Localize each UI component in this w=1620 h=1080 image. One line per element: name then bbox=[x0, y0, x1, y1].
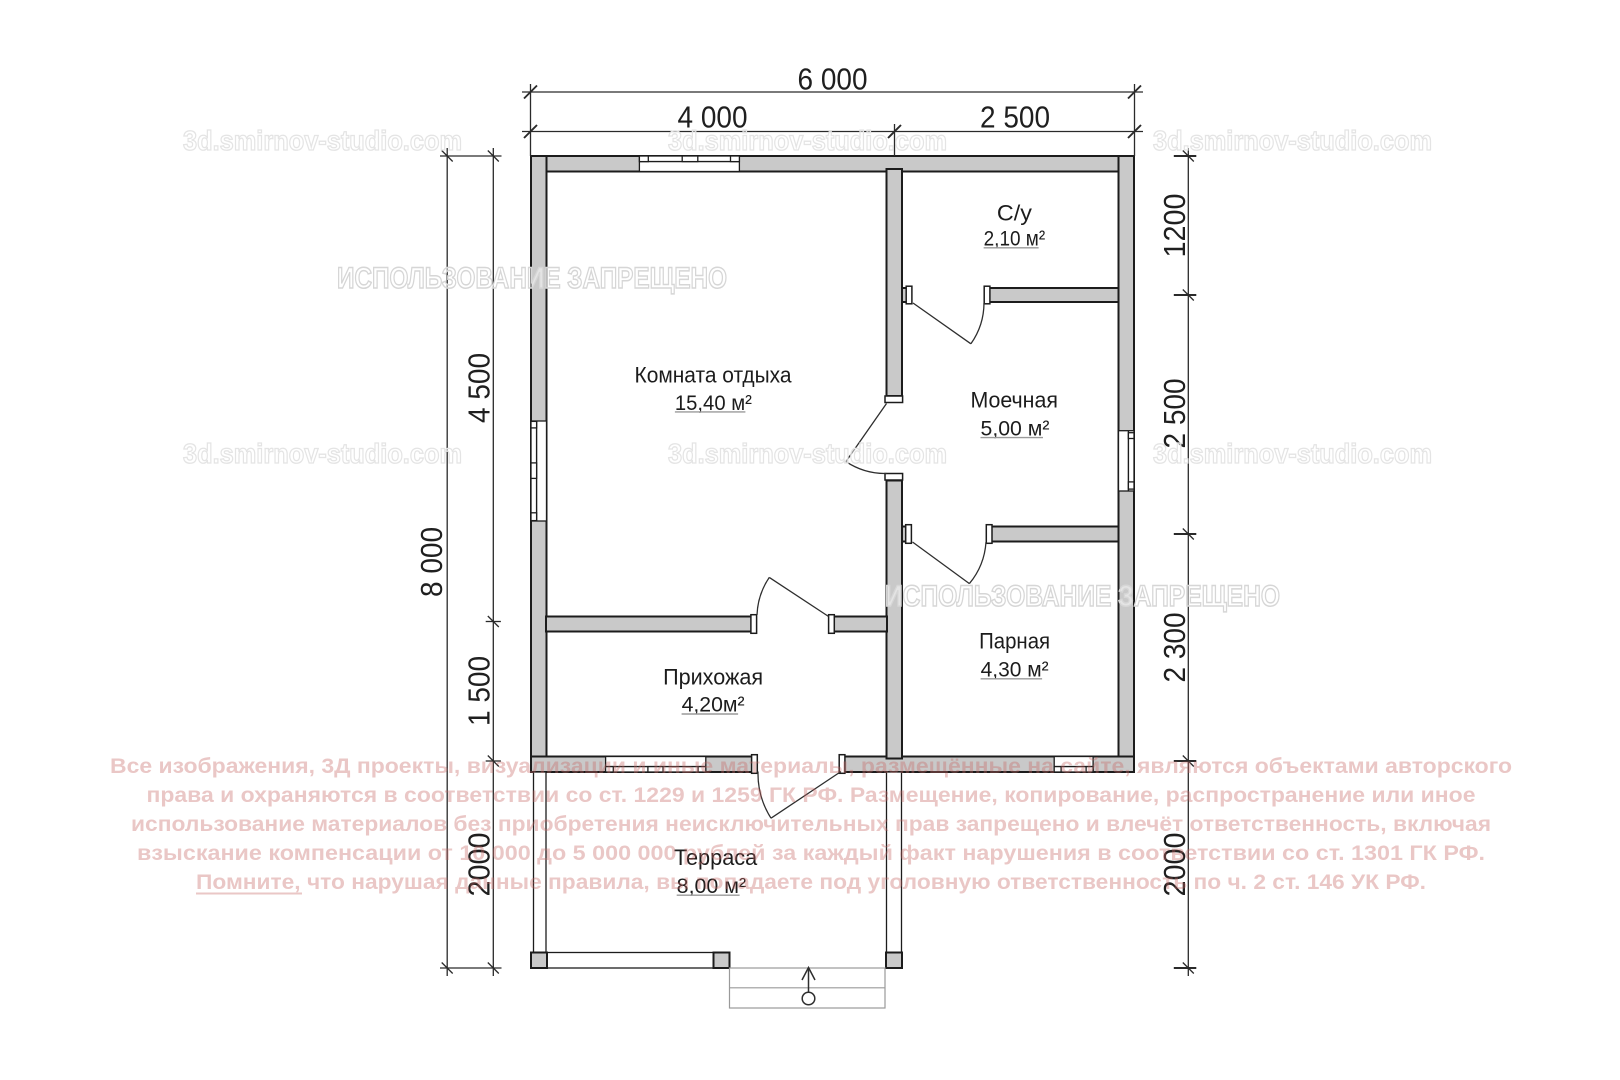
svg-text:4,20м²: 4,20м² bbox=[682, 694, 745, 717]
svg-text:ИСПОЛЬЗОВАНИЕ ЗАПРЕЩЕНО: ИСПОЛЬЗОВАНИЕ ЗАПРЕЩЕНО bbox=[885, 580, 1280, 613]
svg-text:6 000: 6 000 bbox=[798, 62, 868, 97]
svg-text:3d.smirnov-studio.com: 3d.smirnov-studio.com bbox=[668, 125, 947, 156]
svg-text:С/у: С/у bbox=[997, 201, 1032, 226]
svg-text:взыскание компенсации от 10 00: взыскание компенсации от 10 000 до 5 000… bbox=[137, 842, 1485, 865]
svg-text:8 000: 8 000 bbox=[414, 527, 449, 597]
svg-text:2 300: 2 300 bbox=[1157, 613, 1192, 683]
svg-text:использование материалов без п: использование материалов без приобретени… bbox=[131, 813, 1491, 836]
svg-text:3d.smirnov-studio.com: 3d.smirnov-studio.com bbox=[1153, 438, 1432, 469]
svg-text:Все изображения, 3Д проекты, в: Все изображения, 3Д проекты, визуализаци… bbox=[110, 755, 1512, 778]
svg-text:3d.smirnov-studio.com: 3d.smirnov-studio.com bbox=[1153, 125, 1432, 156]
svg-text:Комната отдыха: Комната отдыха bbox=[635, 363, 793, 388]
svg-text:права и охраняются в соответст: права и охраняются в соответствии со ст.… bbox=[147, 784, 1476, 807]
svg-text:3d.smirnov-studio.com: 3d.smirnov-studio.com bbox=[183, 125, 462, 156]
svg-text:1 500: 1 500 bbox=[462, 656, 497, 726]
svg-text:2 500: 2 500 bbox=[980, 100, 1050, 135]
svg-text:Моечная: Моечная bbox=[970, 388, 1058, 413]
svg-text:2,10 м²: 2,10 м² bbox=[984, 228, 1046, 251]
svg-text:3d.smirnov-studio.com: 3d.smirnov-studio.com bbox=[668, 438, 947, 469]
svg-text:1200: 1200 bbox=[1157, 194, 1192, 258]
svg-text:ИСПОЛЬЗОВАНИЕ ЗАПРЕЩЕНО: ИСПОЛЬЗОВАНИЕ ЗАПРЕЩЕНО bbox=[337, 262, 727, 295]
svg-text:Прихожая: Прихожая bbox=[663, 665, 763, 690]
svg-text:Помните, что нарушая данные пр: Помните, что нарушая данные правила, вы … bbox=[196, 871, 1426, 894]
svg-text:3d.smirnov-studio.com: 3d.smirnov-studio.com bbox=[183, 438, 462, 469]
svg-text:4,30 м²: 4,30 м² bbox=[981, 658, 1049, 681]
svg-text:4 500: 4 500 bbox=[462, 353, 497, 423]
svg-text:Парная: Парная bbox=[979, 629, 1050, 654]
